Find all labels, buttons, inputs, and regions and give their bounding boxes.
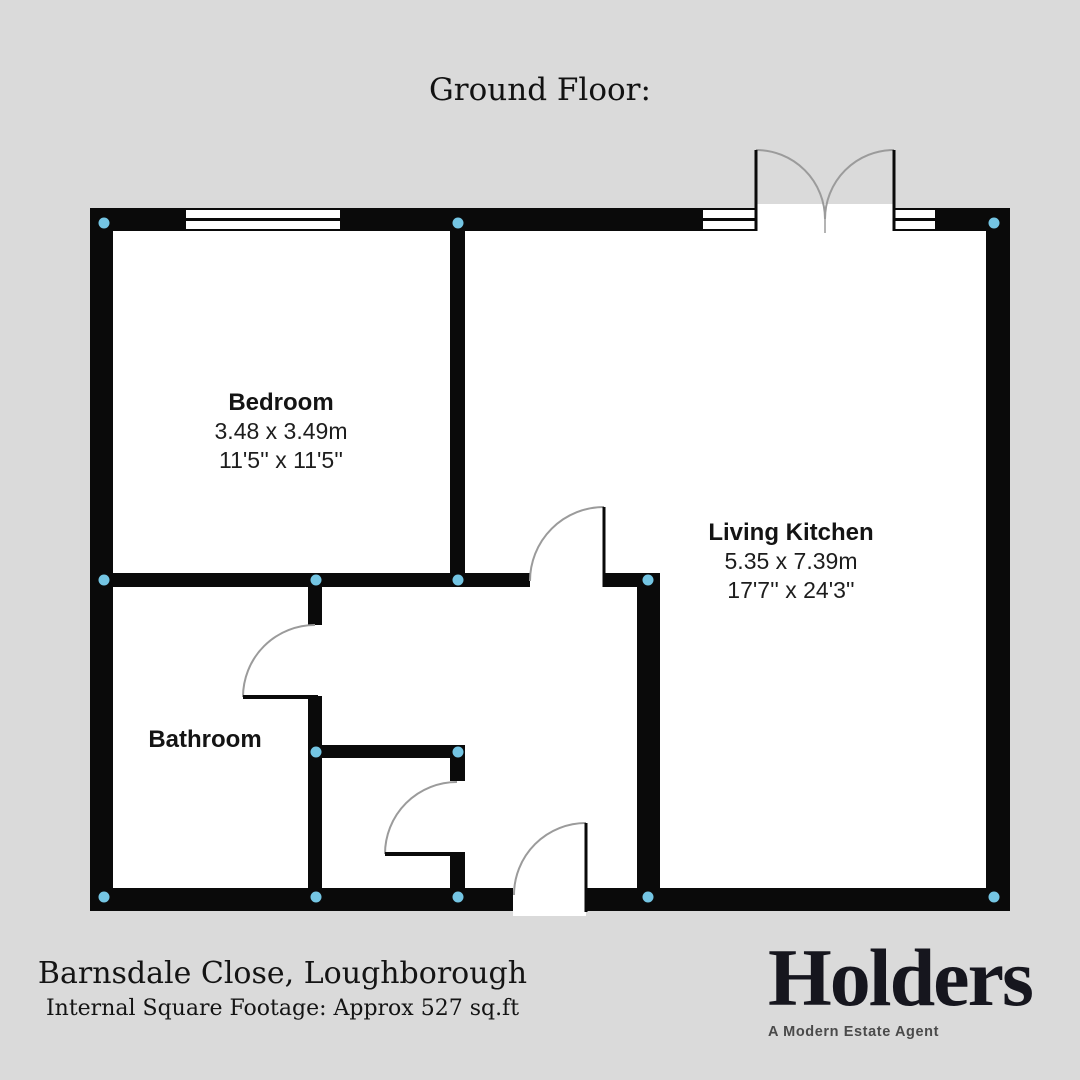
junction-marker <box>453 575 464 586</box>
room-dims-imperial: 11'5'' x 11'5'' <box>161 446 401 475</box>
floorplan-page: Ground Floor: <box>0 0 1080 1080</box>
room-name: Bedroom <box>161 388 401 417</box>
room-dims-imperial: 17'7'' x 24'3'' <box>671 576 911 605</box>
room-dims-metric: 3.48 x 3.49m <box>161 417 401 446</box>
plan-overlay <box>0 0 1080 1080</box>
closet-door-arc <box>385 782 457 854</box>
junction-marker <box>311 747 322 758</box>
junction-marker <box>99 575 110 586</box>
room-name: Living Kitchen <box>671 518 911 547</box>
bathroom-door-arc <box>243 625 315 697</box>
junction-marker <box>989 892 1000 903</box>
property-address: Barnsdale Close, Loughborough <box>0 954 565 994</box>
bedroom-label: Bedroom 3.48 x 3.49m 11'5'' x 11'5'' <box>161 388 401 475</box>
living-kitchen-label: Living Kitchen 5.35 x 7.39m 17'7'' x 24'… <box>671 518 911 605</box>
junction-marker <box>311 575 322 586</box>
brand-name: Holders <box>768 936 1068 1020</box>
junction-marker <box>643 892 654 903</box>
room-dims-metric: 5.35 x 7.39m <box>671 547 911 576</box>
room-name: Bathroom <box>105 725 305 754</box>
french-door-right-arc <box>825 150 894 219</box>
junction-marker <box>453 892 464 903</box>
brand-tagline: A Modern Estate Agent <box>768 1024 1068 1040</box>
junction-marker <box>453 747 464 758</box>
junction-marker <box>453 218 464 229</box>
french-door-left-arc <box>756 150 825 219</box>
bathroom-label: Bathroom <box>105 725 305 754</box>
square-footage: Internal Square Footage: Approx 527 sq.f… <box>0 994 565 1024</box>
junction-marker <box>311 892 322 903</box>
hall-door-arc <box>530 507 604 581</box>
estate-agent-logo: Holders A Modern Estate Agent <box>768 936 1068 1040</box>
junction-marker <box>99 218 110 229</box>
junction-marker <box>989 218 1000 229</box>
junction-marker <box>643 575 654 586</box>
junction-marker <box>99 892 110 903</box>
property-info: Barnsdale Close, Loughborough Internal S… <box>0 954 565 1024</box>
entrance-door-arc <box>514 823 586 895</box>
